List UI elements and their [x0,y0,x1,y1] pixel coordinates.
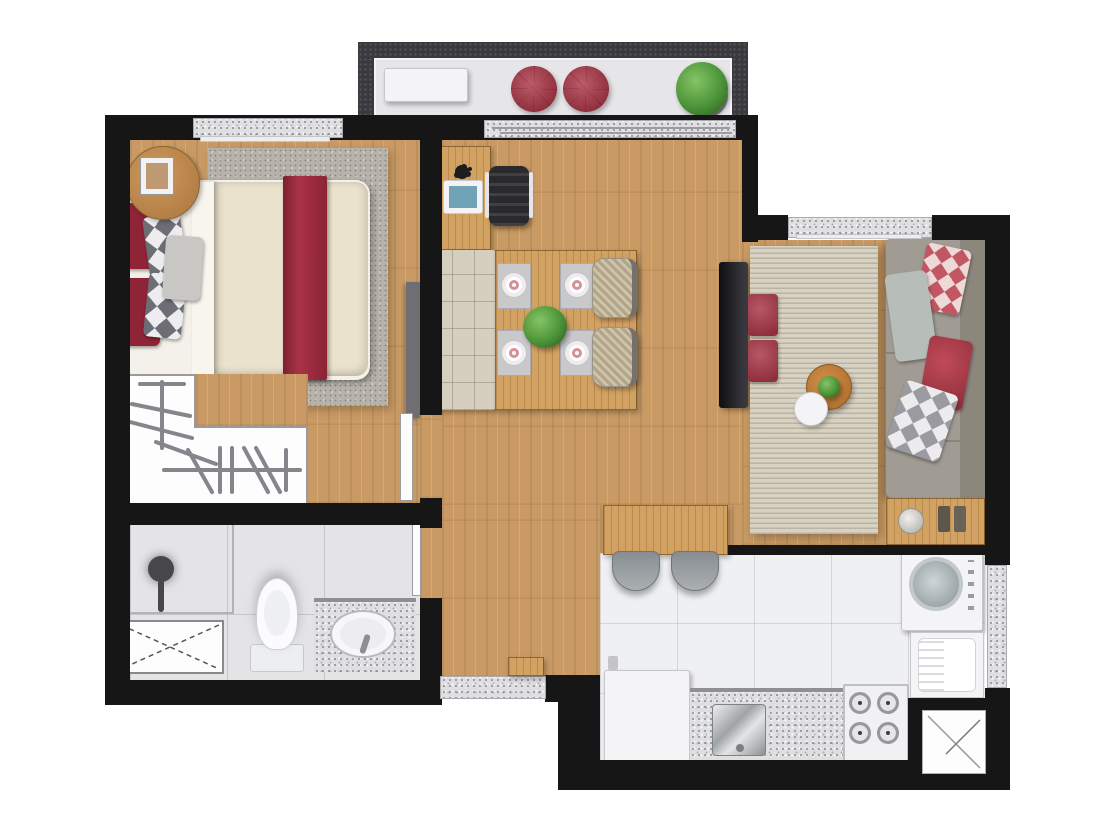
bedroom-window [193,118,343,138]
sliding-door-track-1 [492,127,730,129]
dining-chair-2 [592,327,638,387]
stove-burner-1 [849,692,871,714]
floor-cushion-2 [748,340,778,382]
bathroom-shaft-cross [116,620,224,674]
wall-living-kitchen [728,545,985,555]
laundry-tank-basin [918,638,976,692]
tv-panel [719,262,748,408]
wall-left [105,115,130,705]
toilet-seat [264,590,290,636]
service-window [987,565,1007,688]
kitchen-faucet [736,744,744,752]
wall-kitchen-left [558,700,600,790]
bedroom-window-sill [200,136,330,142]
entrance-threshold [440,676,546,699]
wall-right-upper [985,215,1010,565]
stove-burner-4 [877,722,899,744]
plate-4 [564,340,590,366]
bathroom-door-floor [420,522,442,600]
shower-arm [158,580,164,612]
stove-burner-3 [849,722,871,744]
washing-machine-panel [968,560,974,610]
refrigerator-handle [608,656,618,670]
hall-floor [442,505,600,677]
shower-screen-vertical [232,522,234,614]
bedroom-door-leaf [400,413,413,501]
floor-plan [0,0,1100,825]
table-centerpiece-plant [523,306,567,348]
wall-entry-side [545,675,600,702]
laptop-screen [449,186,477,208]
shower-screen-horizontal [128,612,234,614]
bathroom-door-leaf [412,524,421,596]
office-chair [489,166,529,226]
balcony-pouf-1 [511,66,557,112]
balcony-wall-right [732,42,748,120]
balcony-wall-top [358,42,748,58]
kitchen-shaft-cross [922,710,986,774]
refrigerator [604,670,690,764]
shower-head [148,556,174,582]
balcony-wall-left [358,42,374,120]
desk-ornament [455,165,469,179]
bedroom-door-floor [420,415,442,498]
wall-top-right-b [932,215,1010,240]
bedroom-shelf [406,282,420,418]
balcony-bench [384,68,468,102]
entrance-door-leaf [508,657,544,676]
side-table-white [794,392,828,426]
stove-burner-2 [877,692,899,714]
wall-step [742,115,758,242]
balcony-sliding-door [484,120,736,138]
console-remote-1 [938,506,950,532]
balcony-pouf-2 [563,66,609,112]
balcony-plant [676,62,728,116]
office-chair-arm-right [529,172,533,218]
plate-3 [501,340,527,366]
wall-bedroom-bathroom [105,503,442,525]
floor-cushion-1 [748,294,778,336]
plate-2 [564,272,590,298]
bed-runner [283,176,327,380]
dining-chair-1 [592,258,638,318]
wall-bedroom-living-upper [420,115,442,415]
washing-machine-door [909,557,963,611]
living-window-sill [796,234,922,239]
console-remote-2 [954,506,966,532]
bar-counter [603,505,728,555]
wardrobe-hangers [116,374,308,506]
office-chair-arm-left [485,172,489,218]
console-lamp [898,508,924,534]
wall-bathroom-bottom [105,680,442,705]
bed-pillow-gray [162,235,204,301]
plate-1 [501,272,527,298]
sliding-door-track-2 [500,132,732,134]
photo-frame [141,158,173,194]
